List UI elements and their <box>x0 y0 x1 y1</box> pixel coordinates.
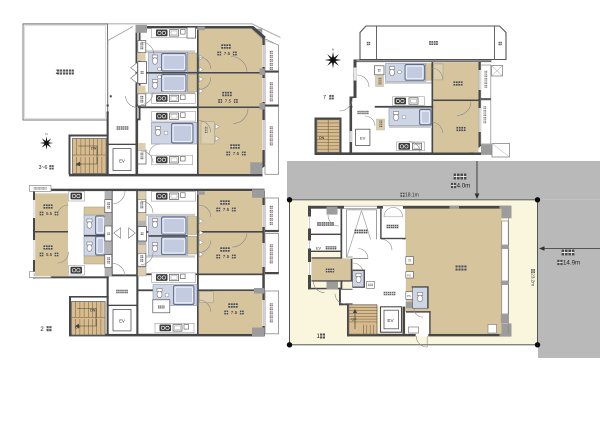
svg-text:18.1m: 18.1m <box>405 193 419 199</box>
svg-text:3~6: 3~6 <box>39 165 48 171</box>
svg-text:UP: UP <box>352 318 358 322</box>
svg-text:DN: DN <box>319 136 325 140</box>
svg-text:4.0m: 4.0m <box>457 183 471 190</box>
svg-text:5.5: 5.5 <box>46 211 53 216</box>
svg-text:EV: EV <box>119 159 125 164</box>
svg-text:7.5: 7.5 <box>225 99 232 104</box>
svg-text:EV: EV <box>316 246 322 250</box>
svg-text:2: 2 <box>40 327 44 333</box>
svg-text:N: N <box>45 132 47 136</box>
svg-text:EV: EV <box>360 136 366 141</box>
svg-text:EV: EV <box>119 319 125 324</box>
svg-text:7.5: 7.5 <box>231 310 238 315</box>
svg-text:7.5: 7.5 <box>223 254 230 259</box>
svg-text:23.2m: 23.2m <box>530 273 535 286</box>
svg-text:7.5: 7.5 <box>233 151 240 156</box>
svg-text:EV: EV <box>387 318 394 323</box>
svg-text:7.5: 7.5 <box>223 207 230 212</box>
svg-text:14.9m: 14.9m <box>563 260 580 267</box>
svg-text:DN: DN <box>90 309 96 313</box>
svg-text:7.5: 7.5 <box>224 51 231 56</box>
svg-text:DN: DN <box>91 147 97 151</box>
svg-text:5.5: 5.5 <box>46 252 53 257</box>
svg-text:N: N <box>332 47 334 51</box>
svg-text:PS: PS <box>407 274 411 278</box>
svg-text:PS: PS <box>407 294 411 298</box>
svg-text:7: 7 <box>323 95 326 101</box>
